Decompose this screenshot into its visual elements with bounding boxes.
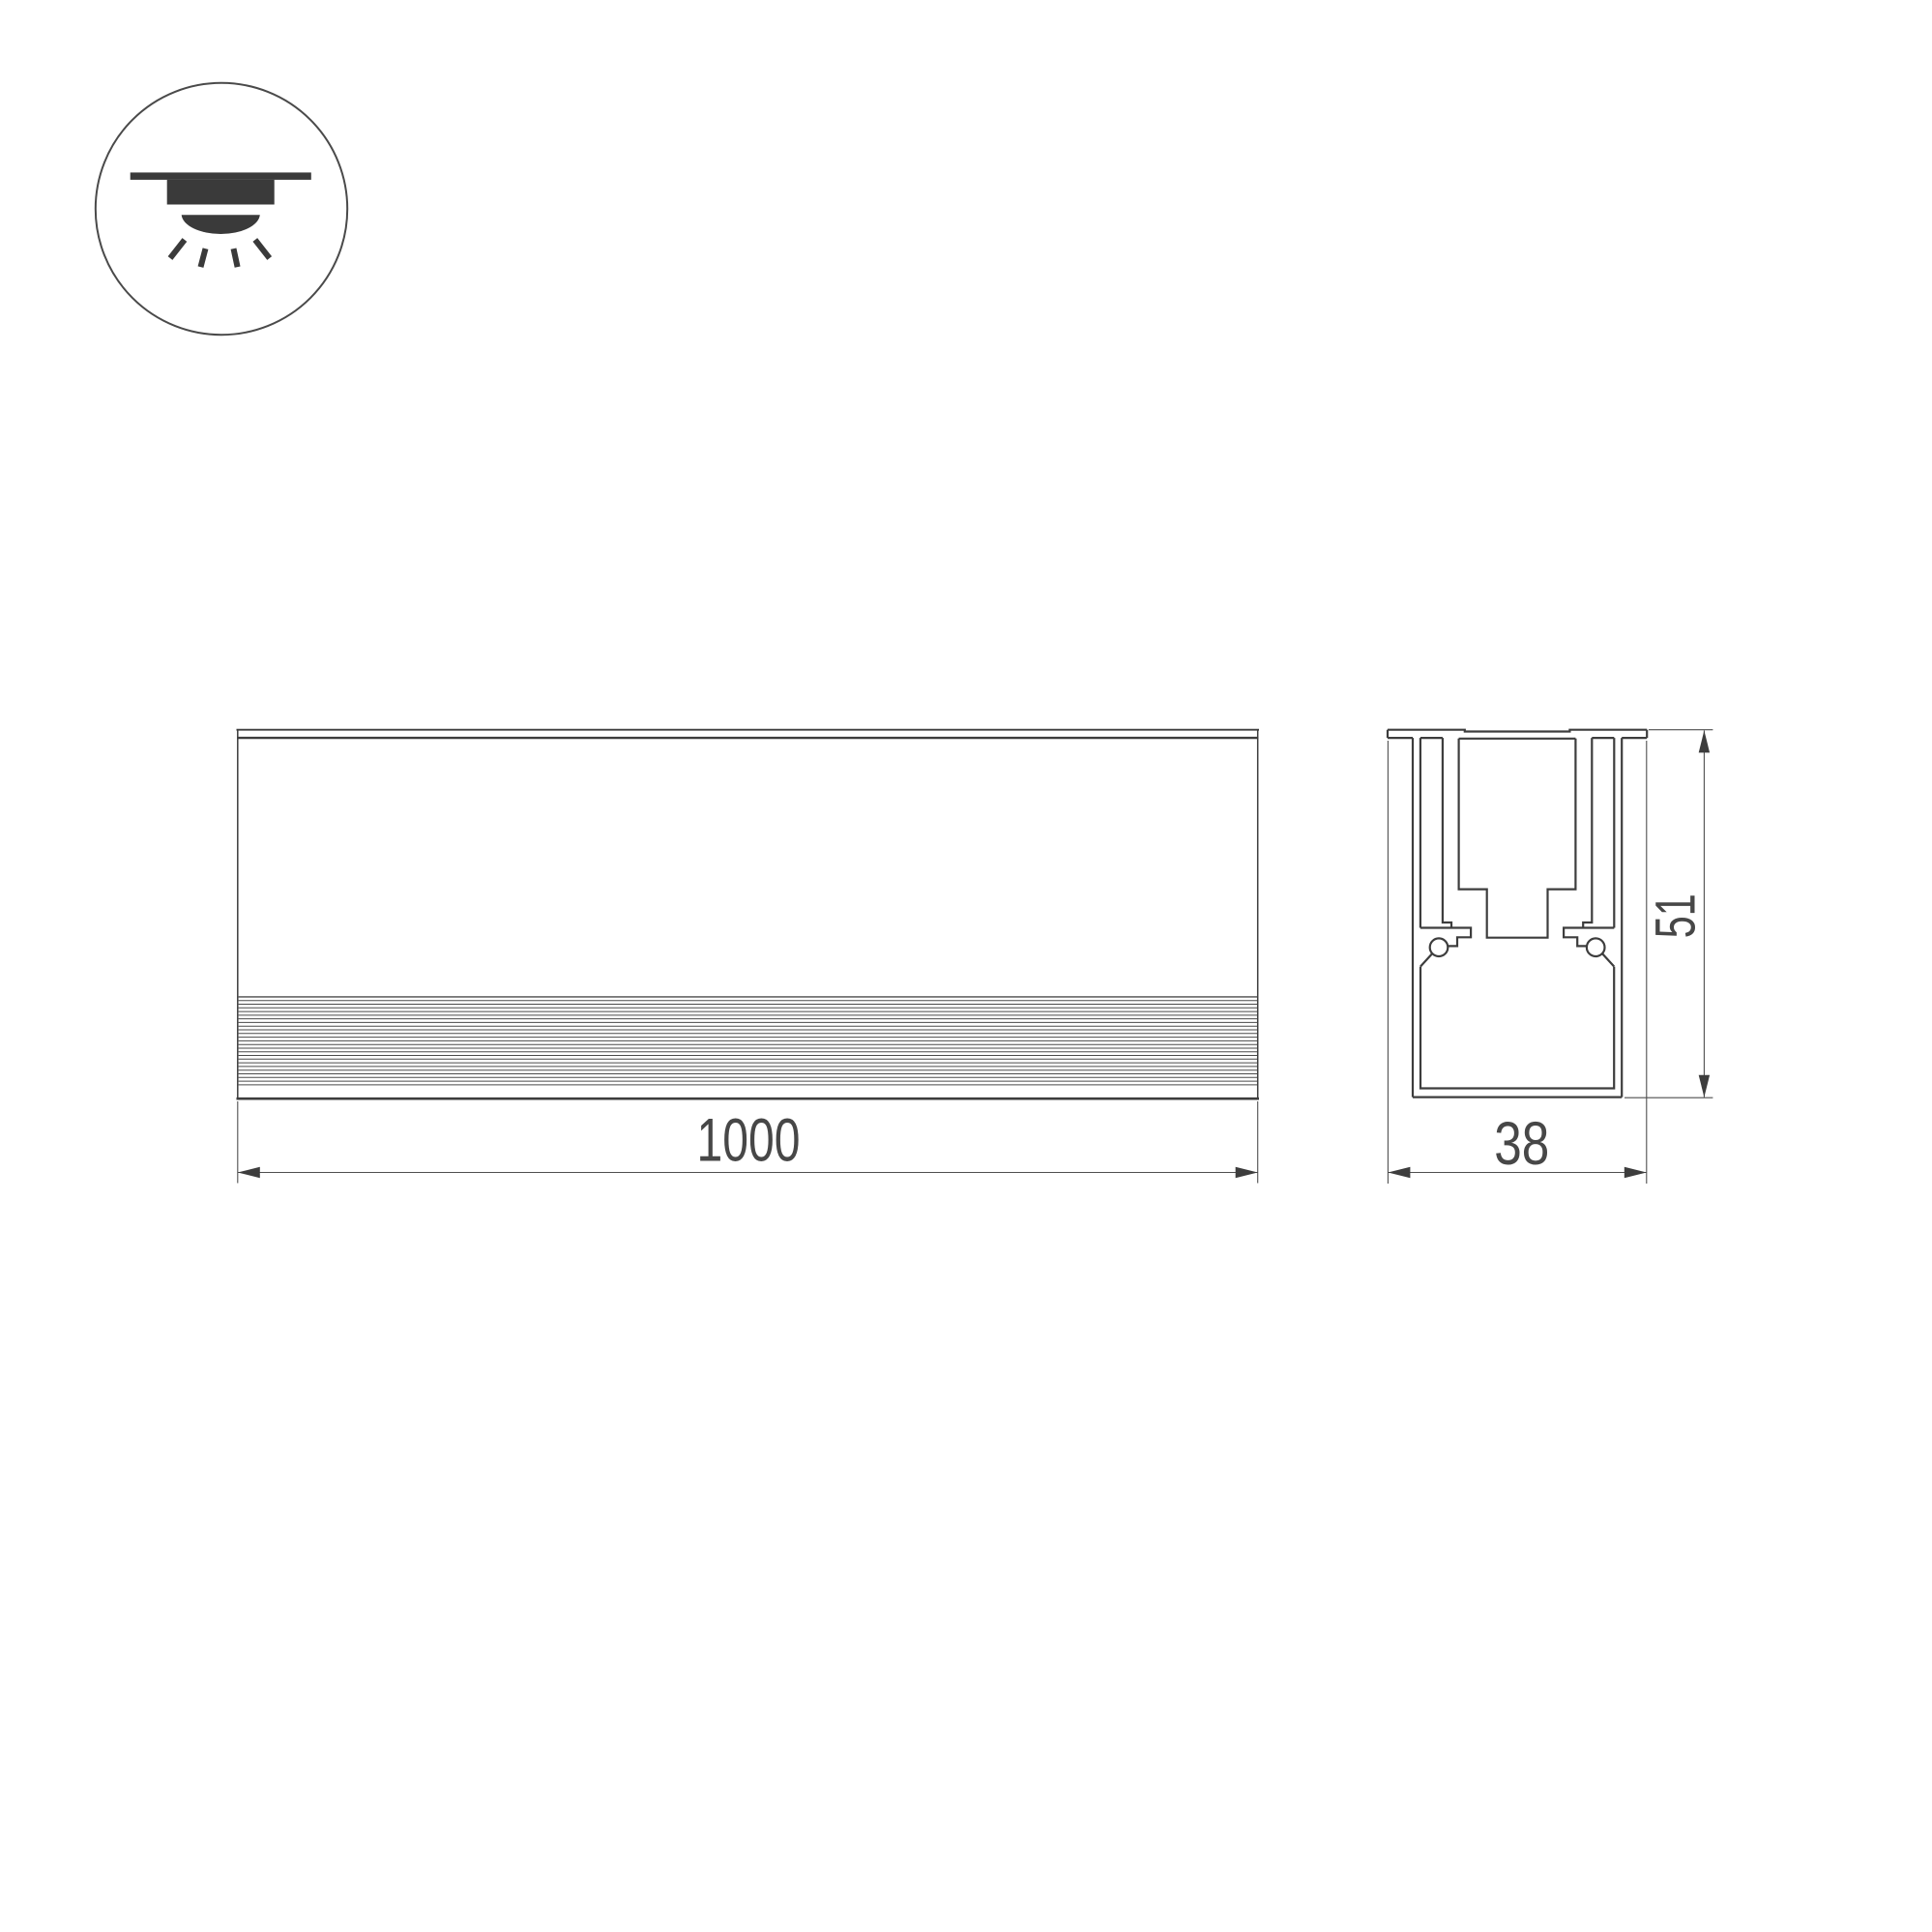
svg-text:51: 51 bbox=[1645, 893, 1708, 938]
svg-text:1000: 1000 bbox=[697, 1107, 801, 1175]
svg-text:38: 38 bbox=[1494, 1110, 1549, 1178]
